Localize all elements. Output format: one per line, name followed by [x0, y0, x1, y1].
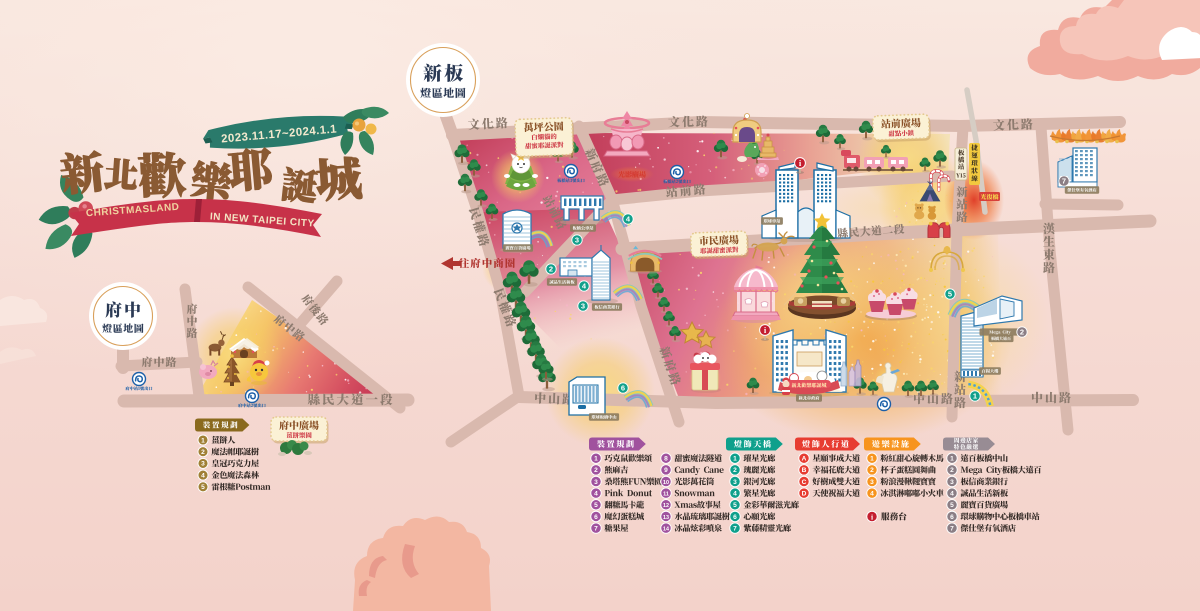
svg-text:6: 6: [621, 384, 625, 393]
svg-text:1: 1: [733, 456, 737, 463]
svg-text:4: 4: [594, 490, 598, 497]
svg-text:C: C: [802, 479, 807, 486]
svg-text:13: 13: [663, 515, 669, 521]
svg-text:3: 3: [594, 479, 598, 486]
svg-text:4: 4: [201, 472, 205, 479]
svg-text:1: 1: [594, 456, 598, 463]
svg-text:1: 1: [201, 437, 205, 444]
svg-text:3: 3: [870, 479, 874, 486]
svg-text:5: 5: [733, 502, 737, 509]
svg-text:2: 2: [950, 467, 954, 474]
svg-text:2: 2: [549, 265, 553, 274]
svg-text:3: 3: [733, 479, 737, 486]
svg-text:3: 3: [950, 479, 954, 486]
svg-text:1: 1: [870, 456, 874, 463]
svg-text:i: i: [871, 512, 873, 521]
svg-text:3: 3: [201, 461, 205, 468]
svg-text:5: 5: [594, 502, 598, 509]
svg-text:2: 2: [1020, 328, 1024, 337]
svg-text:5: 5: [948, 290, 952, 299]
svg-text:2: 2: [733, 467, 737, 474]
svg-text:7: 7: [733, 525, 737, 532]
svg-text:8: 8: [664, 456, 668, 463]
svg-text:3: 3: [575, 236, 579, 245]
svg-text:2: 2: [870, 467, 874, 474]
svg-text:2: 2: [594, 467, 598, 474]
svg-text:5: 5: [950, 502, 954, 509]
svg-text:6: 6: [594, 514, 598, 521]
svg-text:1: 1: [973, 392, 977, 401]
svg-text:7: 7: [594, 525, 598, 532]
svg-text:6: 6: [950, 514, 954, 521]
svg-text:7: 7: [950, 525, 954, 532]
svg-text:1: 1: [950, 456, 954, 463]
svg-text:4: 4: [870, 490, 874, 497]
svg-text:10: 10: [663, 480, 669, 486]
svg-text:6: 6: [733, 514, 737, 521]
svg-text:B: B: [802, 467, 807, 474]
svg-text:14: 14: [663, 526, 669, 532]
svg-text:5: 5: [201, 484, 205, 491]
svg-text:3: 3: [581, 302, 585, 311]
svg-text:12: 12: [663, 503, 669, 509]
svg-text:4: 4: [733, 490, 737, 497]
svg-text:2: 2: [201, 449, 205, 456]
svg-text:7: 7: [1062, 177, 1066, 186]
svg-text:11: 11: [663, 491, 669, 497]
svg-text:A: A: [802, 456, 807, 463]
svg-text:9: 9: [664, 467, 668, 474]
svg-text:D: D: [802, 490, 807, 497]
svg-text:4: 4: [950, 490, 954, 497]
